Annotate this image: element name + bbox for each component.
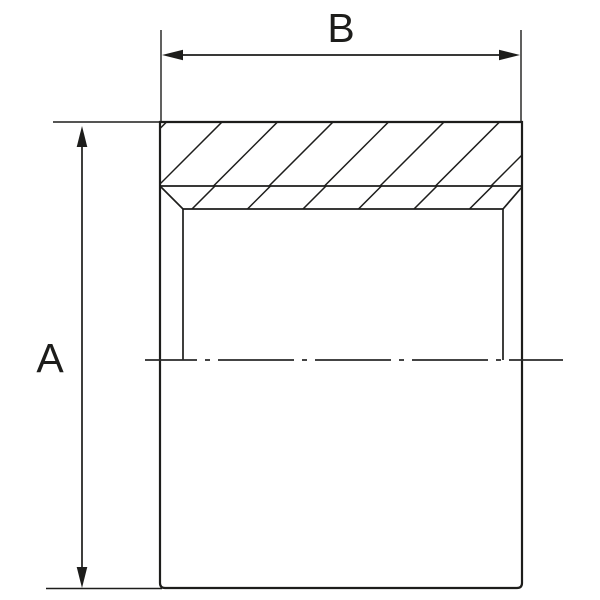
- section-hatch-upper: [87, 114, 564, 202]
- technical-drawing-canvas: B A: [0, 0, 600, 600]
- hatch-line: [309, 114, 397, 202]
- section-hatch-chamfer-band: [184, 176, 503, 217]
- hatch-line: [406, 176, 447, 217]
- hatch-line: [142, 114, 230, 202]
- hatch-line: [87, 114, 175, 202]
- hatch-line: [420, 114, 508, 202]
- hatch-line: [253, 114, 341, 202]
- chamfer-line-left: [161, 187, 183, 209]
- hatch-line: [462, 176, 503, 217]
- dimension-b-label: B: [327, 5, 354, 51]
- dimension-b-arrowhead-right: [499, 50, 520, 61]
- hatch-line: [475, 114, 563, 202]
- dimension-a-arrowhead-up: [77, 126, 88, 147]
- inner-edges: [160, 186, 522, 360]
- dimension-a-arrowhead-down: [77, 567, 88, 588]
- part-body: [160, 122, 522, 588]
- dimension-a-label: A: [36, 335, 64, 381]
- chamfer-line-right: [503, 187, 522, 209]
- hatch-line: [295, 176, 336, 217]
- hatch-line: [240, 176, 281, 217]
- part-outline: [160, 122, 522, 588]
- drawing-page: B A: [0, 0, 600, 600]
- dimension-b-arrowhead-left: [162, 50, 183, 61]
- hatch-line: [351, 176, 392, 217]
- hatch-line: [198, 114, 286, 202]
- hatch-line: [364, 114, 452, 202]
- hatch-line: [184, 176, 225, 217]
